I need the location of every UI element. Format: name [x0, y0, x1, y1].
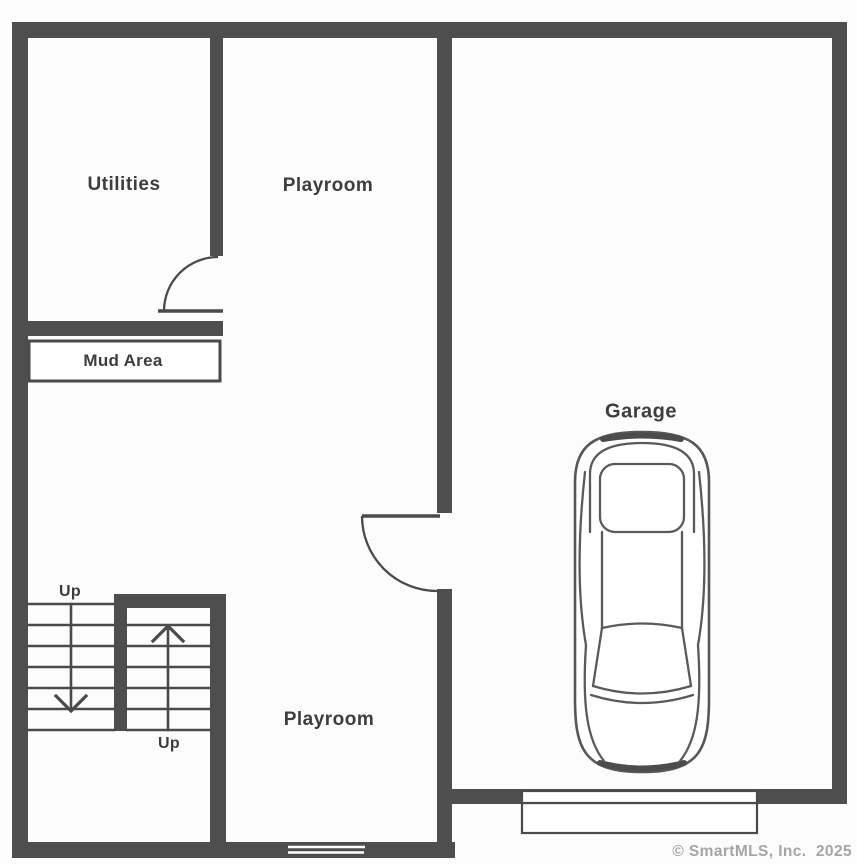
outer-wall-bottom-left: [12, 842, 455, 858]
garage-door-opening-strip: [522, 791, 757, 803]
room-label-playroom-upper: Playroom: [283, 175, 374, 197]
outer-wall-left: [12, 22, 28, 858]
stairwell-wall-right: [210, 594, 226, 843]
outer-wall-top: [12, 22, 847, 38]
wall-playroom-garage-lower: [437, 589, 452, 858]
floor-plan: Utilities Playroom Playroom Garage Mud A…: [0, 0, 857, 864]
stairs-right-flight: [127, 625, 210, 730]
door-swing-arc-icon: [164, 257, 218, 311]
stairwell-wall-top: [114, 594, 226, 608]
room-label-garage: Garage: [605, 401, 677, 424]
outer-walls: [12, 22, 847, 858]
room-label-utilities: Utilities: [87, 174, 160, 196]
stairs-up-label-lower: Up: [158, 735, 180, 753]
interior-walls: [12, 38, 452, 858]
garage-door: [522, 791, 757, 833]
garage-door-outer-strip: [522, 803, 757, 833]
car-top-view-icon: [575, 432, 709, 772]
room-label-mud-area: Mud Area: [83, 351, 162, 371]
wall-playroom-garage-upper: [437, 38, 452, 513]
room-label-playroom-lower: Playroom: [284, 709, 375, 731]
garage-entry-door: [362, 516, 440, 591]
stairs-left-flight: [28, 604, 114, 730]
stairwell-wall-middle: [114, 594, 127, 731]
wall-utilities-bottom: [12, 321, 223, 336]
outer-wall-right: [832, 22, 847, 804]
wall-utilities-playroom: [210, 38, 223, 256]
watermark: © SmartMLS, Inc. 2025: [672, 843, 852, 861]
stairs-up-label-upper: Up: [59, 583, 81, 601]
door-swing-arc-icon: [362, 516, 437, 591]
utilities-door: [158, 257, 223, 311]
floor-plan-drawing: [0, 0, 857, 864]
